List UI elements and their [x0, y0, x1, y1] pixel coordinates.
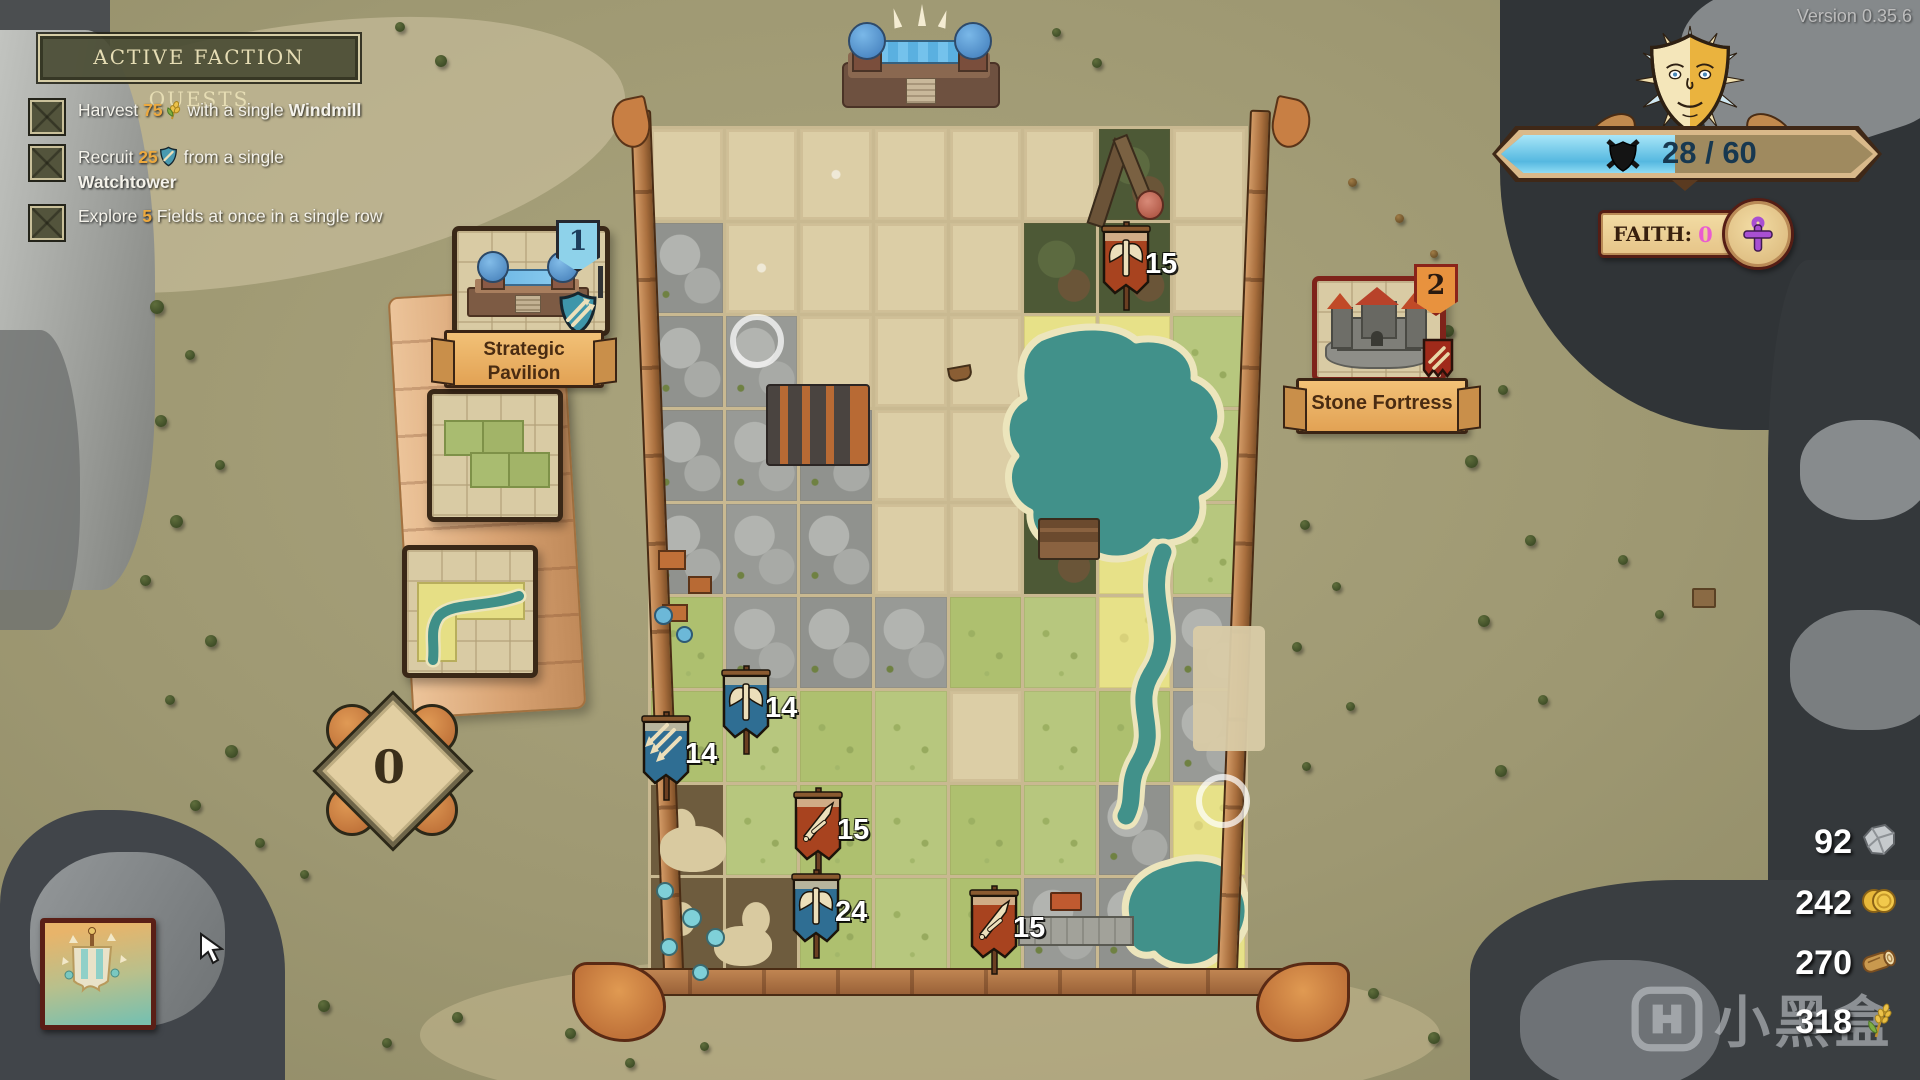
board-rail-bottom: [616, 968, 1296, 996]
board-cell-rock[interactable]: [651, 223, 723, 314]
tree: [1430, 250, 1438, 258]
game-screen: ACTIVE FACTION QUESTS Harvest 75 with a …: [0, 0, 1920, 1080]
quest-text: Recruit 25 from a single Watchtower: [78, 146, 378, 193]
board-cell-empty-slot[interactable]: [1173, 129, 1245, 220]
board-cell-grass[interactable]: [1024, 785, 1096, 876]
board-cell-empty-slot[interactable]: [950, 410, 1022, 501]
unit-count: 15: [1013, 912, 1045, 945]
boulder-right1: [1800, 420, 1920, 520]
dome-right: [954, 22, 992, 60]
board-cell-field[interactable]: [1024, 316, 1096, 407]
board-cell-empty-slot[interactable]: [875, 504, 947, 595]
tree: [382, 1038, 392, 1048]
tree: [1465, 455, 1478, 468]
board-cell-grass[interactable]: [950, 785, 1022, 876]
resource-value: 270: [1795, 944, 1852, 983]
quest-text: Harvest 75 with a single Windmill: [78, 100, 388, 134]
tree: [1478, 615, 1490, 627]
tree: [318, 1000, 330, 1012]
tree: [1092, 58, 1102, 68]
tree: [140, 575, 151, 586]
standard-icon: [45, 923, 141, 1015]
board-cell-water[interactable]: [1099, 597, 1171, 688]
tree: [1618, 555, 1628, 565]
tree: [185, 350, 195, 360]
tree: [1655, 610, 1664, 619]
tree: [452, 1012, 463, 1023]
board-cell-grass[interactable]: [1173, 316, 1245, 407]
tree: [395, 22, 405, 32]
quest-item-2: Recruit 25 from a single Watchtower: [30, 146, 378, 193]
tree: [205, 635, 217, 647]
board-cell-water[interactable]: [1099, 504, 1171, 595]
unit-banner-sword[interactable]: 15: [962, 882, 1072, 978]
board-cell-empty-slot[interactable]: [651, 129, 723, 220]
unit-banner-axe[interactable]: 15: [1094, 218, 1204, 314]
tree: [225, 745, 238, 758]
quest-item-3: Explore 5 Fields at once in a single row: [30, 206, 388, 240]
quest-panel-title: ACTIVE FACTION QUESTS: [38, 34, 360, 82]
board-cell-empty-slot[interactable]: [950, 316, 1022, 407]
tile-preview-card-2[interactable]: [402, 545, 538, 678]
board-cell-empty-slot[interactable]: [950, 504, 1022, 595]
tree: [1332, 582, 1341, 591]
board-cell-empty-slot[interactable]: [950, 223, 1022, 314]
board-cell-forest[interactable]: [1024, 504, 1096, 595]
board-cell-rock[interactable]: [1099, 785, 1171, 876]
board-cell-empty-slot[interactable]: [875, 129, 947, 220]
board-cell-empty-slot[interactable]: [726, 129, 798, 220]
dome-left: [848, 22, 886, 60]
board-cell-rock[interactable]: [875, 597, 947, 688]
board-cell-rock[interactable]: [726, 504, 798, 595]
board-cell-rock[interactable]: [800, 410, 872, 501]
heybox-logo-icon: [1630, 985, 1704, 1053]
faith-medallion: [1722, 198, 1794, 270]
wheat-icon: [164, 100, 182, 125]
wood-crate: [1692, 588, 1716, 608]
resource-wheat: 318: [1795, 1002, 1898, 1042]
steps: [906, 78, 936, 104]
board-cell-empty-slot[interactable]: [800, 316, 872, 407]
board-cell-empty-slot[interactable]: [800, 129, 872, 220]
stone-icon: [1860, 822, 1898, 863]
quest-checkbox[interactable]: [30, 100, 64, 134]
resource-value: 242: [1795, 884, 1852, 923]
board-cell-empty-slot[interactable]: [875, 410, 947, 501]
tree: [190, 800, 201, 811]
unit-count: 24: [835, 896, 867, 929]
board-cell-water[interactable]: [1099, 410, 1171, 501]
tree: [170, 515, 183, 528]
tile-preview-card-1[interactable]: [427, 389, 563, 522]
morale-value: 28 / 60: [1662, 135, 1757, 171]
river-preview: [407, 550, 533, 673]
sparkle: [890, 7, 903, 28]
tree: [300, 870, 309, 879]
tree: [165, 695, 175, 705]
tree: [155, 415, 167, 427]
mouse-cursor: [198, 932, 224, 966]
board-cell-empty-slot[interactable]: [950, 691, 1022, 782]
quest-checkbox[interactable]: [30, 146, 64, 180]
wood-icon: [1860, 943, 1898, 984]
tree: [565, 1028, 576, 1039]
recruit-shield-icon: [159, 146, 178, 172]
tree: [1302, 762, 1311, 771]
coins-icon: [1860, 883, 1898, 924]
boulder-right2: [1790, 610, 1920, 730]
faith-value: 0: [1698, 222, 1713, 247]
badge-strip: [598, 266, 603, 298]
tree: [700, 1042, 709, 1051]
bathhouse-building[interactable]: [834, 16, 1004, 110]
morale-fill: [1501, 135, 1675, 173]
shield-swords-icon: [1600, 134, 1646, 174]
resource-coins: 242: [1795, 883, 1898, 923]
board-cell-field[interactable]: [1024, 410, 1096, 501]
board-cell-empty-slot[interactable]: [875, 223, 947, 314]
tree: [1538, 695, 1548, 705]
resource-value: 318: [1795, 1003, 1852, 1042]
tree: [625, 1058, 635, 1068]
board-cell-forest[interactable]: [1099, 129, 1171, 220]
cliff-left-shade: [0, 330, 80, 630]
quest-text: Explore 5 Fields at once in a single row: [78, 206, 388, 240]
tree: [255, 838, 265, 848]
board-cell-grass[interactable]: [1024, 691, 1096, 782]
unit-count: 14: [765, 692, 797, 725]
unit-count: 15: [1145, 248, 1177, 281]
morale-bar: 28 / 60: [1492, 126, 1882, 182]
board-cell-empty-slot[interactable]: [875, 316, 947, 407]
faction-standard-card[interactable]: [40, 918, 156, 1030]
ankh-icon: [1741, 214, 1775, 254]
tree: [1368, 988, 1379, 999]
resource-value: 92: [1814, 823, 1852, 862]
tree: [1498, 385, 1508, 395]
unit-banner-axe[interactable]: 24: [784, 866, 894, 962]
tree: [1052, 28, 1061, 37]
morale-pointer: [1672, 180, 1698, 191]
tree: [435, 55, 447, 67]
tree: [150, 300, 164, 314]
sparkle: [938, 9, 951, 29]
quest-item-1: Harvest 75 with a single Windmill: [30, 100, 388, 134]
board-cell-rock[interactable]: [726, 316, 798, 407]
tree: [1525, 535, 1536, 546]
board-cell-empty-slot[interactable]: [726, 223, 798, 314]
unit-banner-arrows[interactable]: 14: [634, 708, 744, 804]
tile-stack-value: 0: [318, 740, 460, 794]
fortress-name-ribbon: Stone Fortress: [1296, 378, 1468, 434]
resource-stone: 92: [1814, 822, 1898, 862]
tree: [1292, 642, 1302, 652]
board-cell-empty-slot[interactable]: [800, 223, 872, 314]
board-cell-grass[interactable]: [1173, 410, 1245, 501]
unit-count: 14: [685, 738, 717, 771]
pavilion-dome: [477, 251, 509, 283]
board-cell-empty-slot[interactable]: [950, 129, 1022, 220]
tree: [1348, 178, 1357, 187]
board-cell-water[interactable]: [1099, 316, 1171, 407]
tree: [215, 460, 225, 470]
board-cell-forest[interactable]: [1024, 223, 1096, 314]
pavilion-name-ribbon: StrategicPavilion: [444, 330, 604, 388]
board-cell-rock[interactable]: [1099, 878, 1171, 969]
tree: [1428, 1032, 1440, 1044]
board-cell-empty-slot[interactable]: [1024, 129, 1096, 220]
tile-stack-counter[interactable]: 0: [318, 696, 460, 838]
board-cell-grass[interactable]: [1024, 597, 1096, 688]
tree: [1300, 520, 1310, 530]
tree: [1395, 214, 1404, 223]
unit-count: 15: [837, 814, 869, 847]
tree: [1495, 765, 1507, 777]
version-label: Version 0.35.6: [1797, 6, 1912, 27]
sparkle: [918, 4, 926, 26]
board-cell-rock[interactable]: [800, 504, 872, 595]
board-cell-grass[interactable]: [875, 691, 947, 782]
quest-checkbox[interactable]: [30, 206, 64, 240]
board-cell-grass[interactable]: [1099, 691, 1171, 782]
wheat-icon: [1860, 1001, 1898, 1044]
board-cell-rock[interactable]: [726, 410, 798, 501]
board-cell-grass[interactable]: [950, 597, 1022, 688]
rail-ornament-topright: [1267, 95, 1315, 152]
tree: [1346, 702, 1355, 711]
resource-wood: 270: [1795, 943, 1898, 983]
